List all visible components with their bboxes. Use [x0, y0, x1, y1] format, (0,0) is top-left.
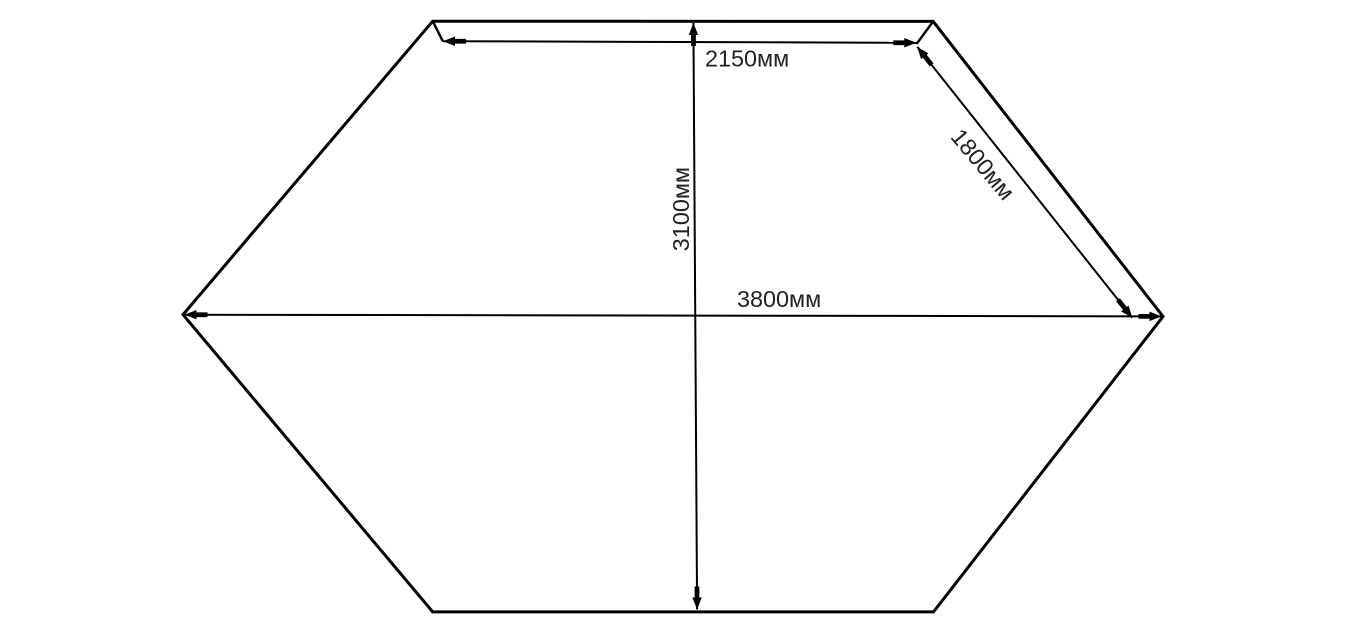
svg-text:3800мм: 3800мм	[737, 286, 821, 312]
svg-text:2150мм: 2150мм	[705, 46, 789, 72]
svg-text:1800мм: 1800мм	[946, 124, 1020, 205]
svg-text:3100мм: 3100мм	[668, 167, 694, 251]
